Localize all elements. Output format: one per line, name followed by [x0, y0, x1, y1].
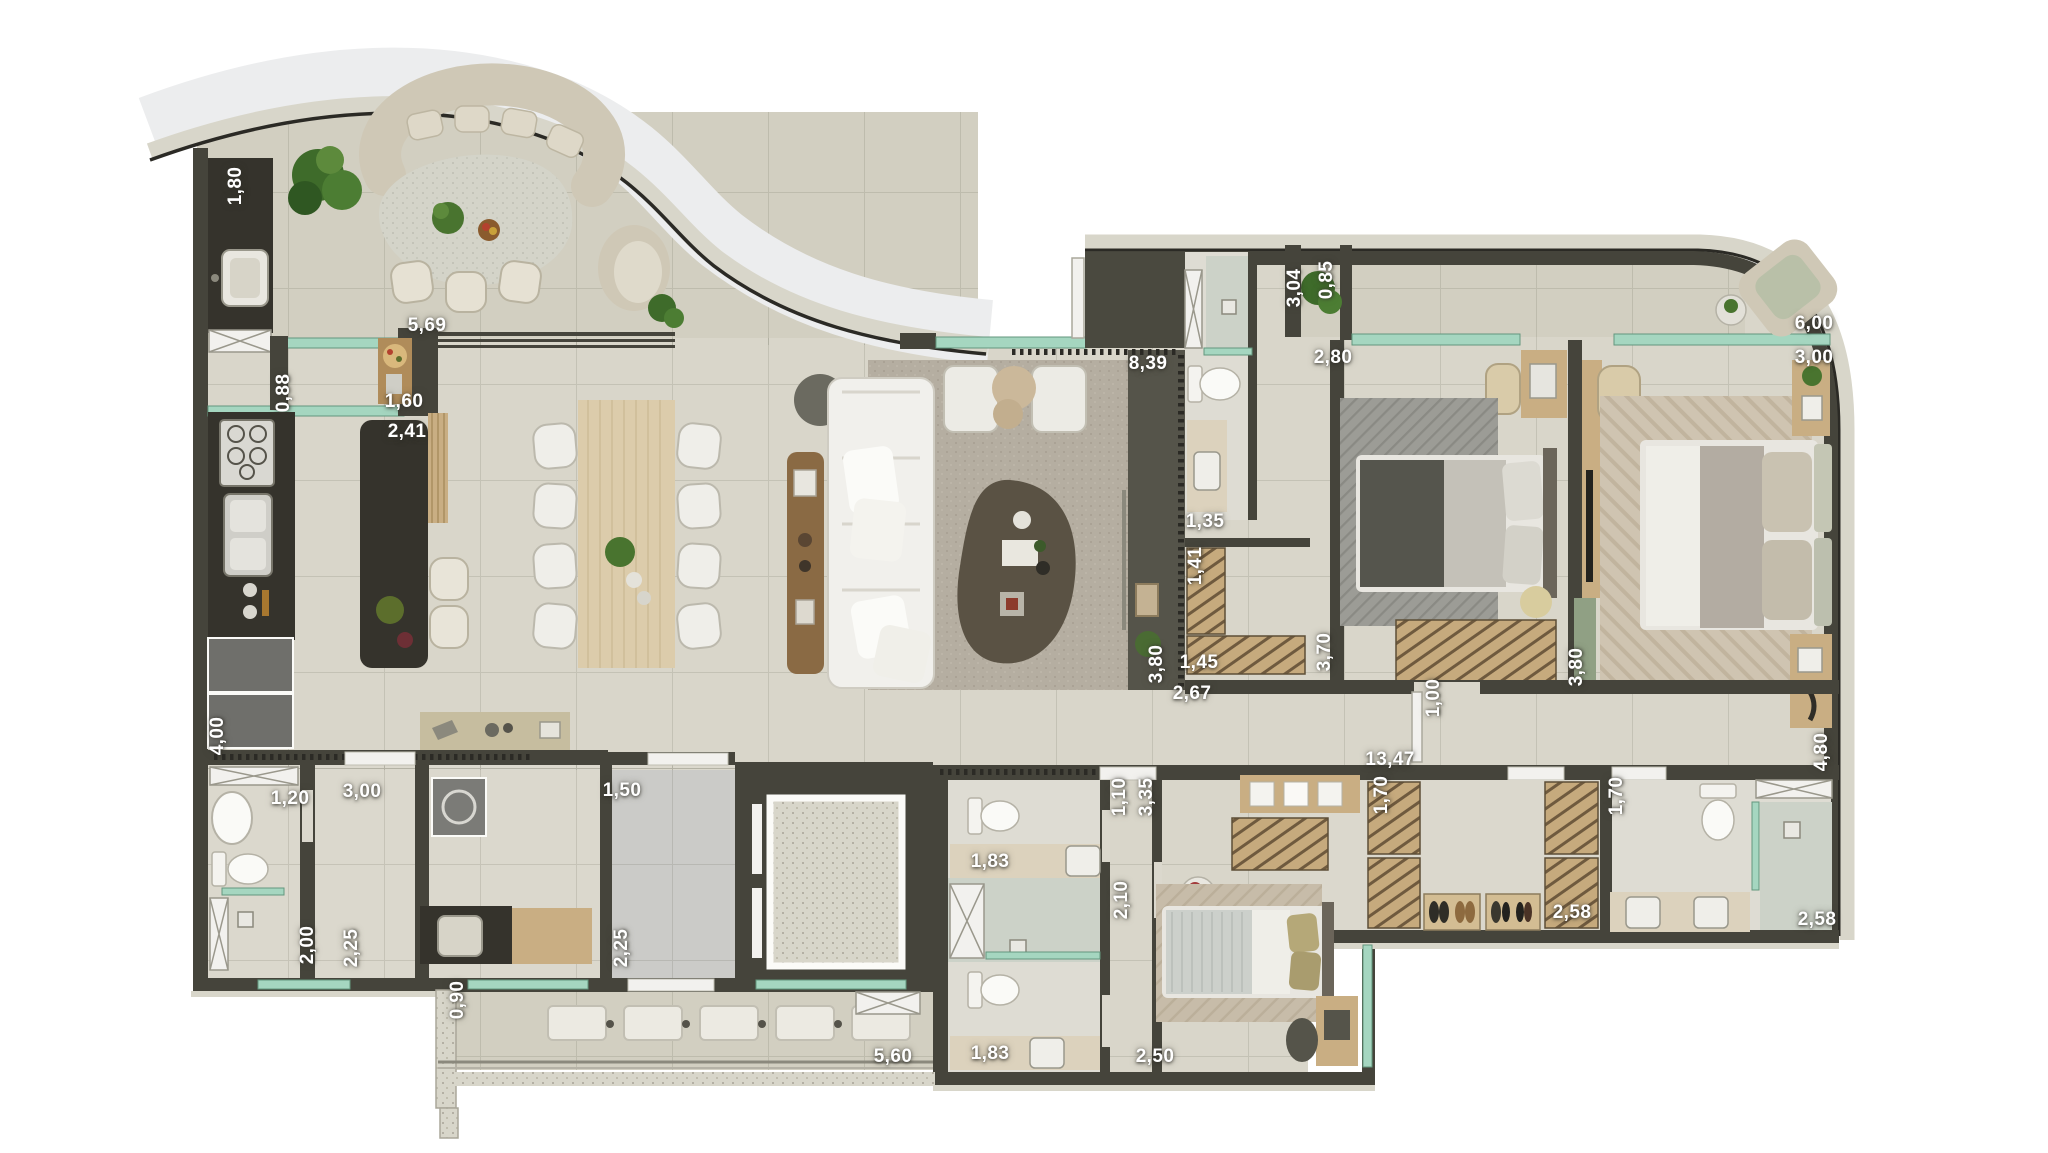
pillow — [1502, 460, 1545, 521]
headboard — [1543, 448, 1557, 598]
coffee-table-books — [1002, 540, 1038, 566]
elevator-door-2[interactable] — [752, 888, 762, 958]
laptop — [1530, 364, 1556, 398]
sink — [1066, 846, 1100, 876]
wardrobe — [1232, 818, 1328, 870]
entry-glass — [936, 337, 1086, 348]
closet-wardrobe-4 — [1545, 858, 1598, 928]
potted-plant — [1724, 299, 1738, 313]
desk-chair — [1286, 1018, 1318, 1062]
bathroom-b — [948, 962, 1100, 1072]
wc-shower-head — [238, 912, 253, 927]
bar-faucet — [211, 274, 219, 282]
entry-wall-block — [1085, 252, 1185, 348]
closet-wardrobe-2 — [1368, 858, 1420, 928]
laundry-sink — [438, 916, 482, 956]
bathB-door — [1102, 995, 1110, 1047]
hall-door-sill — [1100, 767, 1156, 780]
elevator-core — [735, 762, 933, 988]
floor-plan-drawing — [0, 0, 2048, 1153]
vanity-sink — [1194, 452, 1220, 490]
sink — [1030, 1038, 1064, 1068]
shared-shower — [948, 878, 1100, 962]
service-door-sill — [345, 752, 415, 765]
pillow — [1286, 913, 1320, 954]
closet-wardrobe-3 — [1545, 782, 1598, 854]
toilet — [981, 801, 1019, 831]
salad-bowl — [376, 596, 404, 624]
bathroom-a — [948, 780, 1100, 878]
kitchen-island — [360, 420, 428, 668]
master-door-leaf[interactable] — [1412, 692, 1422, 762]
condiment — [243, 583, 257, 597]
master-window — [1614, 334, 1830, 345]
bedroom-3-block — [948, 775, 1360, 1080]
bathA-door — [1102, 810, 1110, 862]
wall-pier — [270, 336, 288, 410]
duvet — [1444, 460, 1506, 587]
terrace-pillar — [436, 990, 456, 1108]
desk-monitor — [1324, 1010, 1350, 1040]
living-room — [787, 350, 1185, 690]
bedroom2-window — [1352, 334, 1520, 345]
laundry-window — [468, 980, 588, 989]
closet-wardrobe-1 — [1368, 782, 1420, 854]
terrace-window — [756, 980, 906, 989]
terrace-edge-band — [438, 1072, 935, 1086]
mb-shower-glass — [1752, 802, 1759, 890]
folding-counter — [512, 908, 592, 964]
shower-head — [1222, 300, 1236, 314]
mb-sink-2 — [1694, 897, 1728, 928]
toilet — [981, 975, 1019, 1005]
wall-art — [1136, 584, 1158, 616]
hall-wardrobe-2 — [1187, 636, 1305, 674]
wc-door — [302, 790, 313, 842]
wc-window — [258, 980, 350, 989]
wc-toilet — [212, 852, 268, 886]
berry-bowl — [397, 632, 413, 648]
terrace-door-sill — [628, 979, 714, 991]
floor-plan-page: 1,805,690,881,602,418,393,040,852,806,00… — [0, 0, 2048, 1153]
fridge — [208, 638, 293, 692]
toilet — [1188, 366, 1240, 402]
pepper-mill — [262, 590, 269, 616]
bedside-lamp — [1520, 586, 1552, 618]
master-pillow-1 — [1762, 452, 1812, 532]
master-bathroom — [1610, 780, 1832, 932]
headboard-panel-2 — [1814, 538, 1832, 626]
master-door-opening — [1414, 682, 1480, 694]
masterbath-door-sill — [1612, 767, 1666, 780]
bedroom2-wardrobe — [1396, 620, 1556, 686]
mb-shower-head — [1784, 822, 1800, 838]
mb-sink-1 — [1626, 897, 1660, 928]
vanity — [950, 1036, 1100, 1070]
gray-blanket — [1700, 446, 1764, 628]
hall-wardrobe-1 — [1187, 548, 1225, 634]
dark-throw — [1360, 460, 1444, 587]
centerpiece-plant — [605, 537, 635, 567]
elevator-door-1[interactable] — [752, 804, 762, 874]
mb-toilet — [1700, 784, 1736, 840]
tv — [1586, 470, 1593, 582]
master-pillow-2 — [1762, 540, 1812, 620]
green-wall-panel — [1574, 598, 1596, 682]
mb-shower — [1760, 802, 1832, 930]
freezer — [208, 694, 293, 748]
wc-sink — [212, 792, 252, 844]
entry-door[interactable] — [1072, 258, 1084, 338]
glass-shelf — [986, 952, 1100, 959]
wc-glass-shelf — [222, 888, 284, 895]
elevator-hall-door — [648, 753, 728, 765]
shower-glass — [1204, 348, 1252, 355]
closet-door-sill — [1508, 767, 1564, 780]
washer — [432, 778, 486, 836]
headboard — [1322, 902, 1334, 1002]
elevator-car — [770, 798, 902, 966]
headboard-panel-1 — [1814, 444, 1832, 532]
dried-plant — [1135, 631, 1161, 657]
